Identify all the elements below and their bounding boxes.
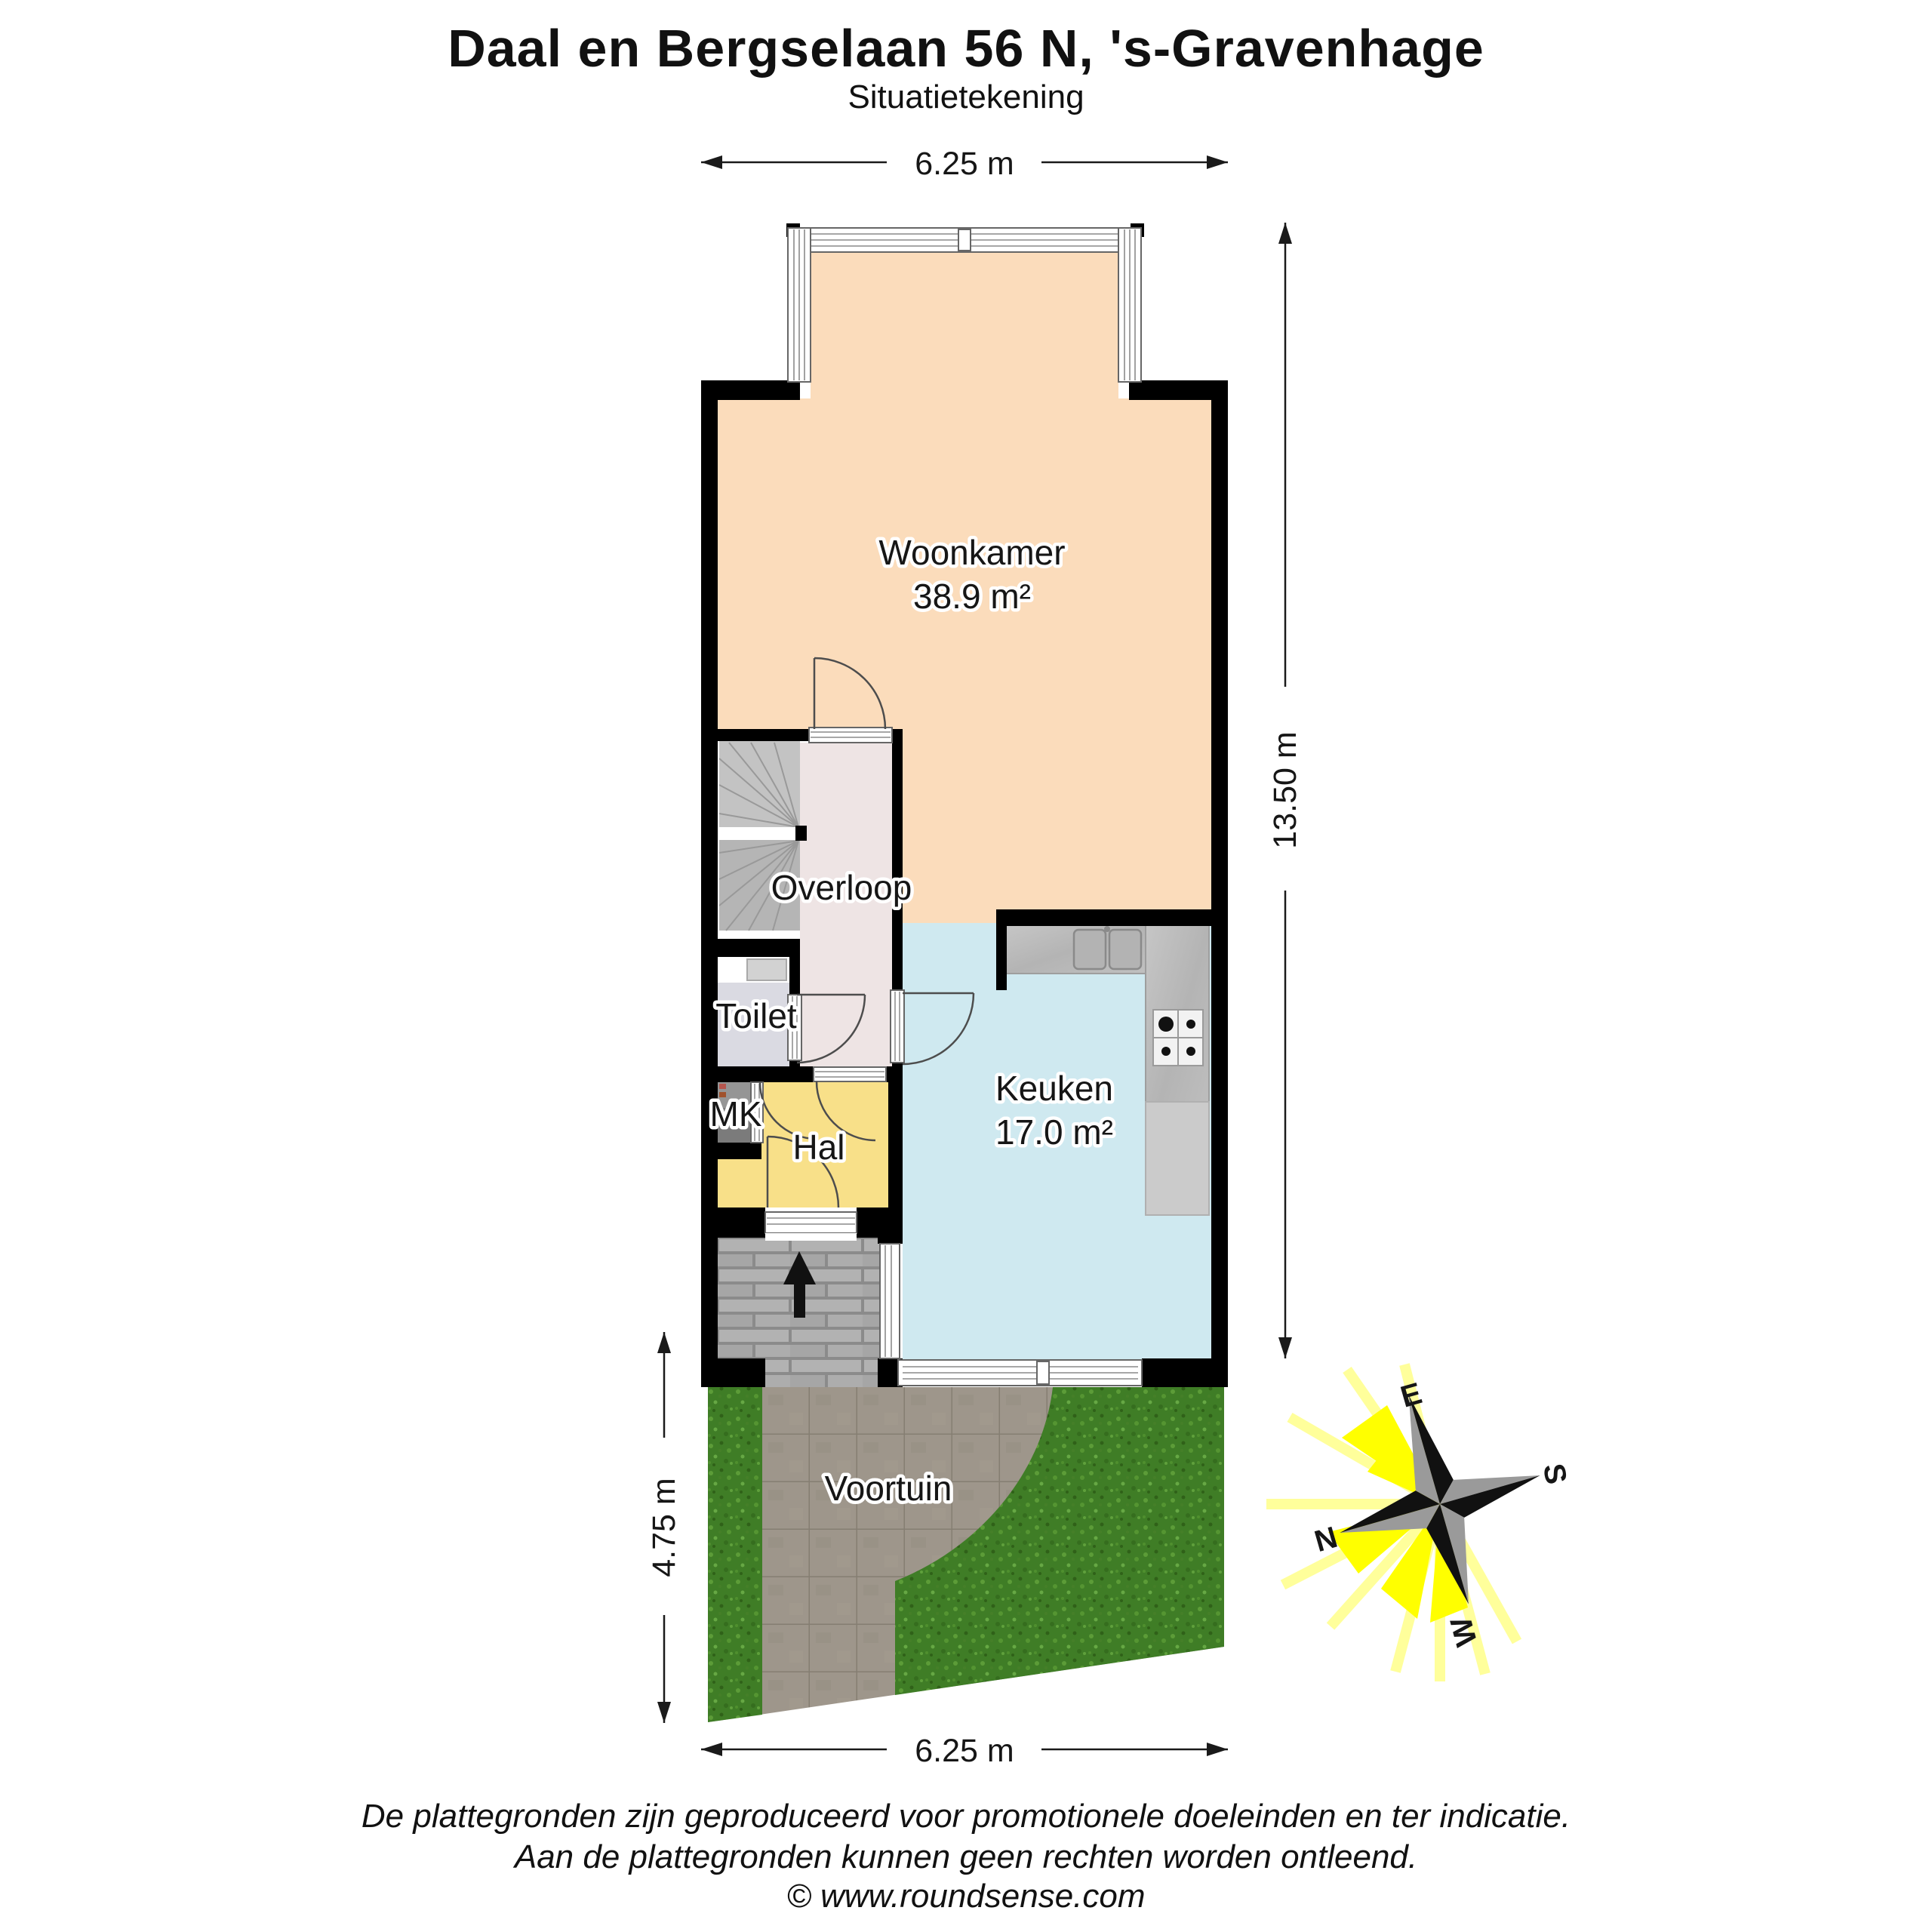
label-woonkamer-area: 38.9 m² (913, 577, 1031, 616)
compass-rose: N E S W (1266, 1364, 1573, 1681)
meter-icon (719, 1084, 726, 1089)
label-woonkamer: Woonkamer (878, 533, 1065, 572)
bay-right-window (1118, 228, 1141, 382)
kitchen-west-window (880, 1244, 900, 1358)
dim-left-label: 4.75 m (646, 1478, 682, 1577)
dimension-bottom: 6.25 m (701, 1729, 1228, 1770)
label-overloop: Overloop (771, 868, 912, 907)
room-woonkamer-floor-lower (903, 724, 1211, 913)
overloop-opening (809, 728, 892, 743)
floorplan: Woonkamer 38.9 m² Overloop Toilet MK Hal… (644, 142, 1573, 1770)
stair-newel-post (795, 826, 807, 841)
dim-top-label: 6.25 m (915, 146, 1014, 182)
toilet-washbasin (747, 959, 786, 980)
label-voortuin: Voortuin (825, 1469, 952, 1508)
keuken-door-frame (891, 990, 904, 1063)
bay-left-window (788, 228, 811, 382)
label-toilet: Toilet (715, 996, 797, 1035)
compass-north-label: N (1311, 1521, 1341, 1558)
compass-south-label: S (1537, 1461, 1573, 1487)
stove-icon (1153, 1010, 1203, 1066)
room-woonkamer-bay-floor (811, 241, 1118, 400)
dim-right-label: 13.50 m (1267, 731, 1303, 848)
floorplan-canvas: Woonkamer 38.9 m² Overloop Toilet MK Hal… (0, 0, 1932, 1932)
voortuin-garden (708, 1387, 1224, 1722)
dimension-top: 6.25 m (701, 142, 1228, 183)
front-door-frame (765, 1212, 857, 1241)
footer-disclaimer-line1: De plattegronden zijn geproduceerd voor … (0, 1798, 1932, 1835)
label-mk: MK (710, 1094, 762, 1134)
label-keuken: Keuken (995, 1069, 1113, 1108)
compass-east-label: E (1397, 1377, 1426, 1414)
garden-grass-left (708, 1387, 762, 1722)
footer-credit: © www.roundsense.com (0, 1878, 1932, 1915)
label-keuken-area: 17.0 m² (995, 1112, 1113, 1152)
dim-bottom-label: 6.25 m (915, 1733, 1014, 1769)
hal-opening (814, 1067, 886, 1081)
kitchen-bottom-window (898, 1360, 1142, 1386)
dimension-left: 4.75 m (644, 1332, 685, 1723)
room-hal-floor-ext (718, 1159, 761, 1207)
bay-front-window (797, 228, 1132, 252)
label-hal: Hal (792, 1128, 844, 1167)
footer-disclaimer-line2: Aan de plattegronden kunnen geen rechten… (0, 1838, 1932, 1876)
dimension-right: 13.50 m (1265, 223, 1306, 1358)
